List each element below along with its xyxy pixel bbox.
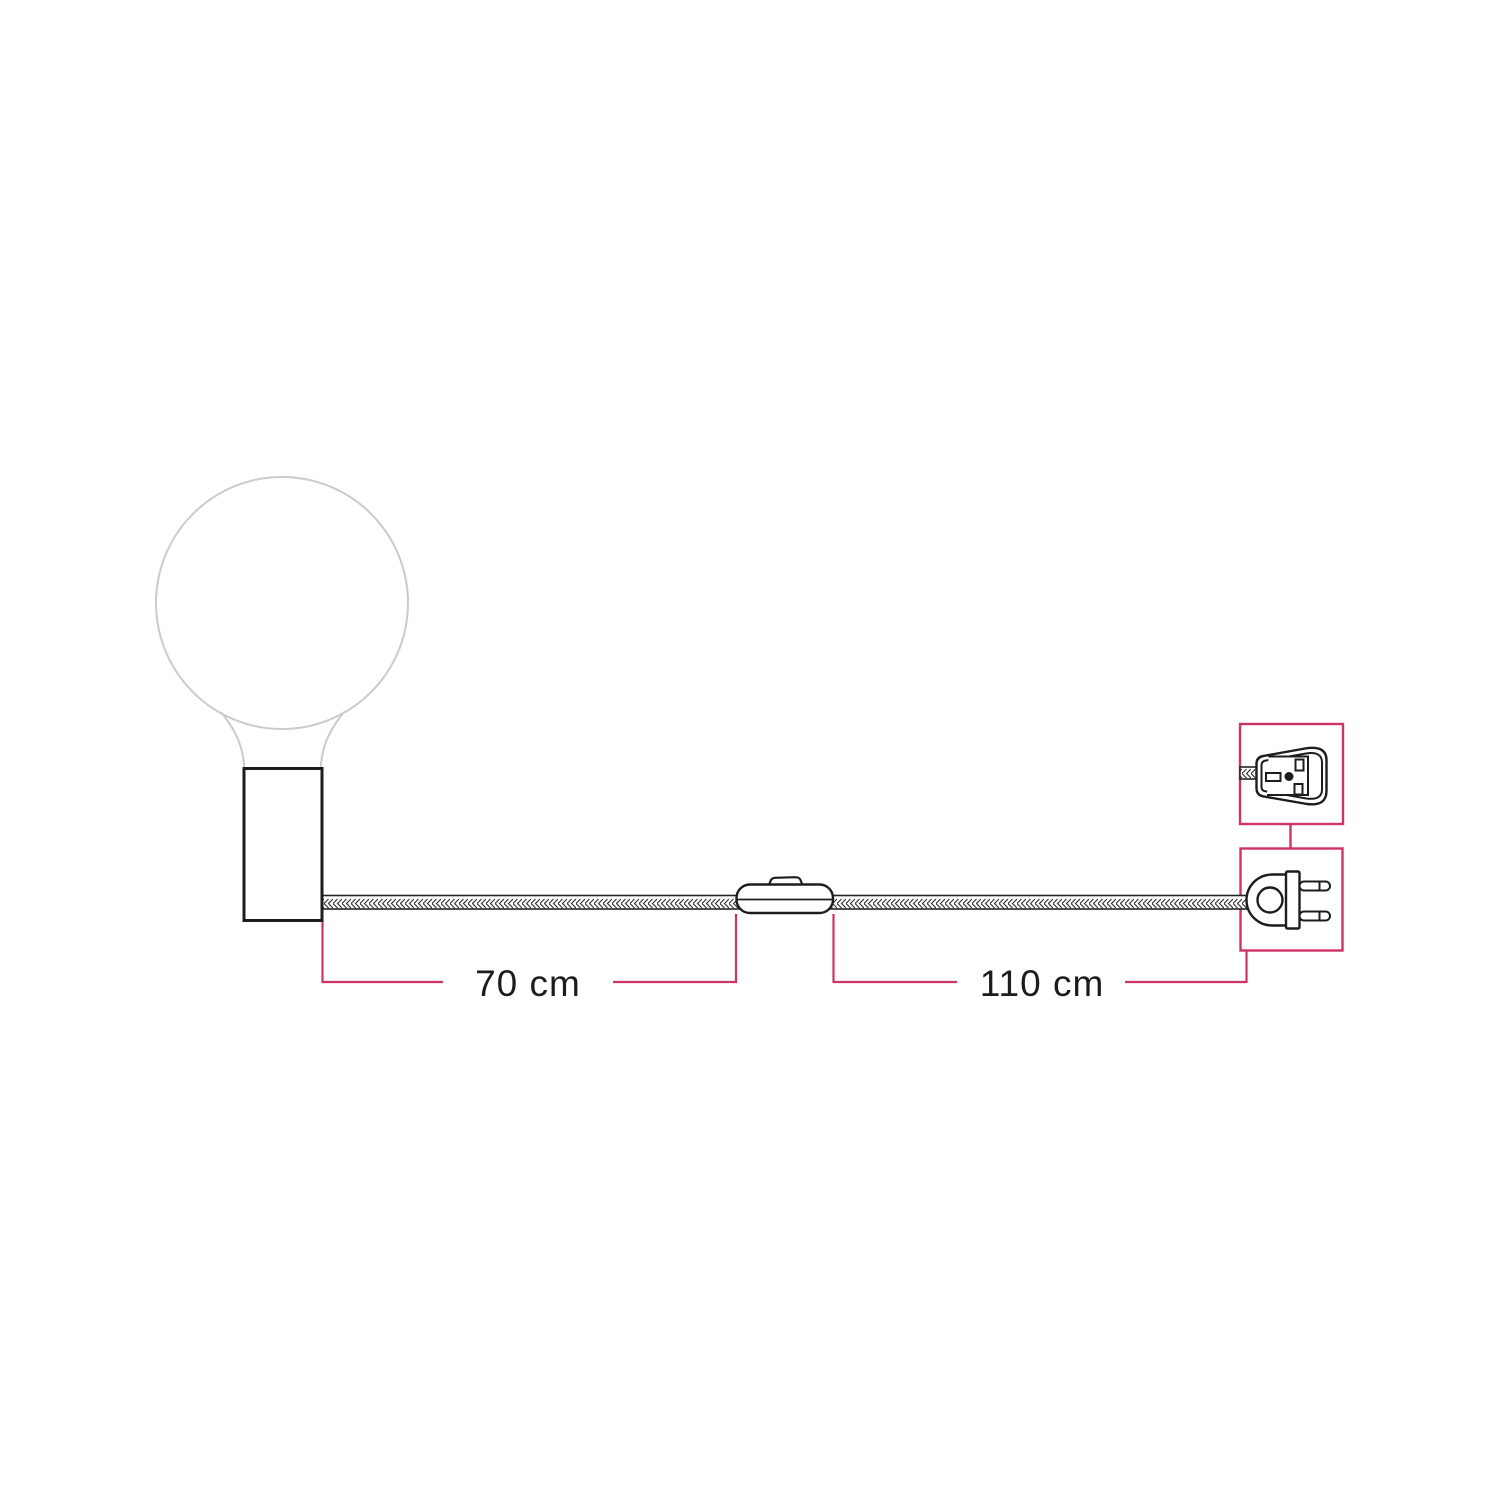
dimension-label-110cm: 110 cm bbox=[980, 963, 1105, 1004]
cable-segment-right bbox=[830, 896, 1262, 910]
dimension-label-70cm: 70 cm bbox=[475, 963, 581, 1004]
uk-plug-pin-bottom bbox=[1295, 784, 1303, 795]
product-dimension-diagram: 70 cm 110 cm bbox=[0, 0, 1500, 1500]
diagram-canvas: 70 cm 110 cm bbox=[0, 0, 1500, 1500]
uk-plug-detail bbox=[1257, 748, 1327, 805]
uk-plug-center-dot bbox=[1285, 772, 1294, 781]
lamp-holder bbox=[244, 769, 322, 921]
uk-plug-pin-top bbox=[1296, 760, 1304, 771]
uk-plug-pin-left bbox=[1266, 773, 1281, 781]
cable-segment-left bbox=[322, 896, 740, 910]
plug-faceplate bbox=[1286, 872, 1300, 929]
plug-grip-hole bbox=[1258, 888, 1283, 913]
plug-pin-top bbox=[1300, 882, 1331, 891]
background bbox=[0, 0, 1500, 1500]
plug-pin-bottom bbox=[1300, 912, 1331, 921]
